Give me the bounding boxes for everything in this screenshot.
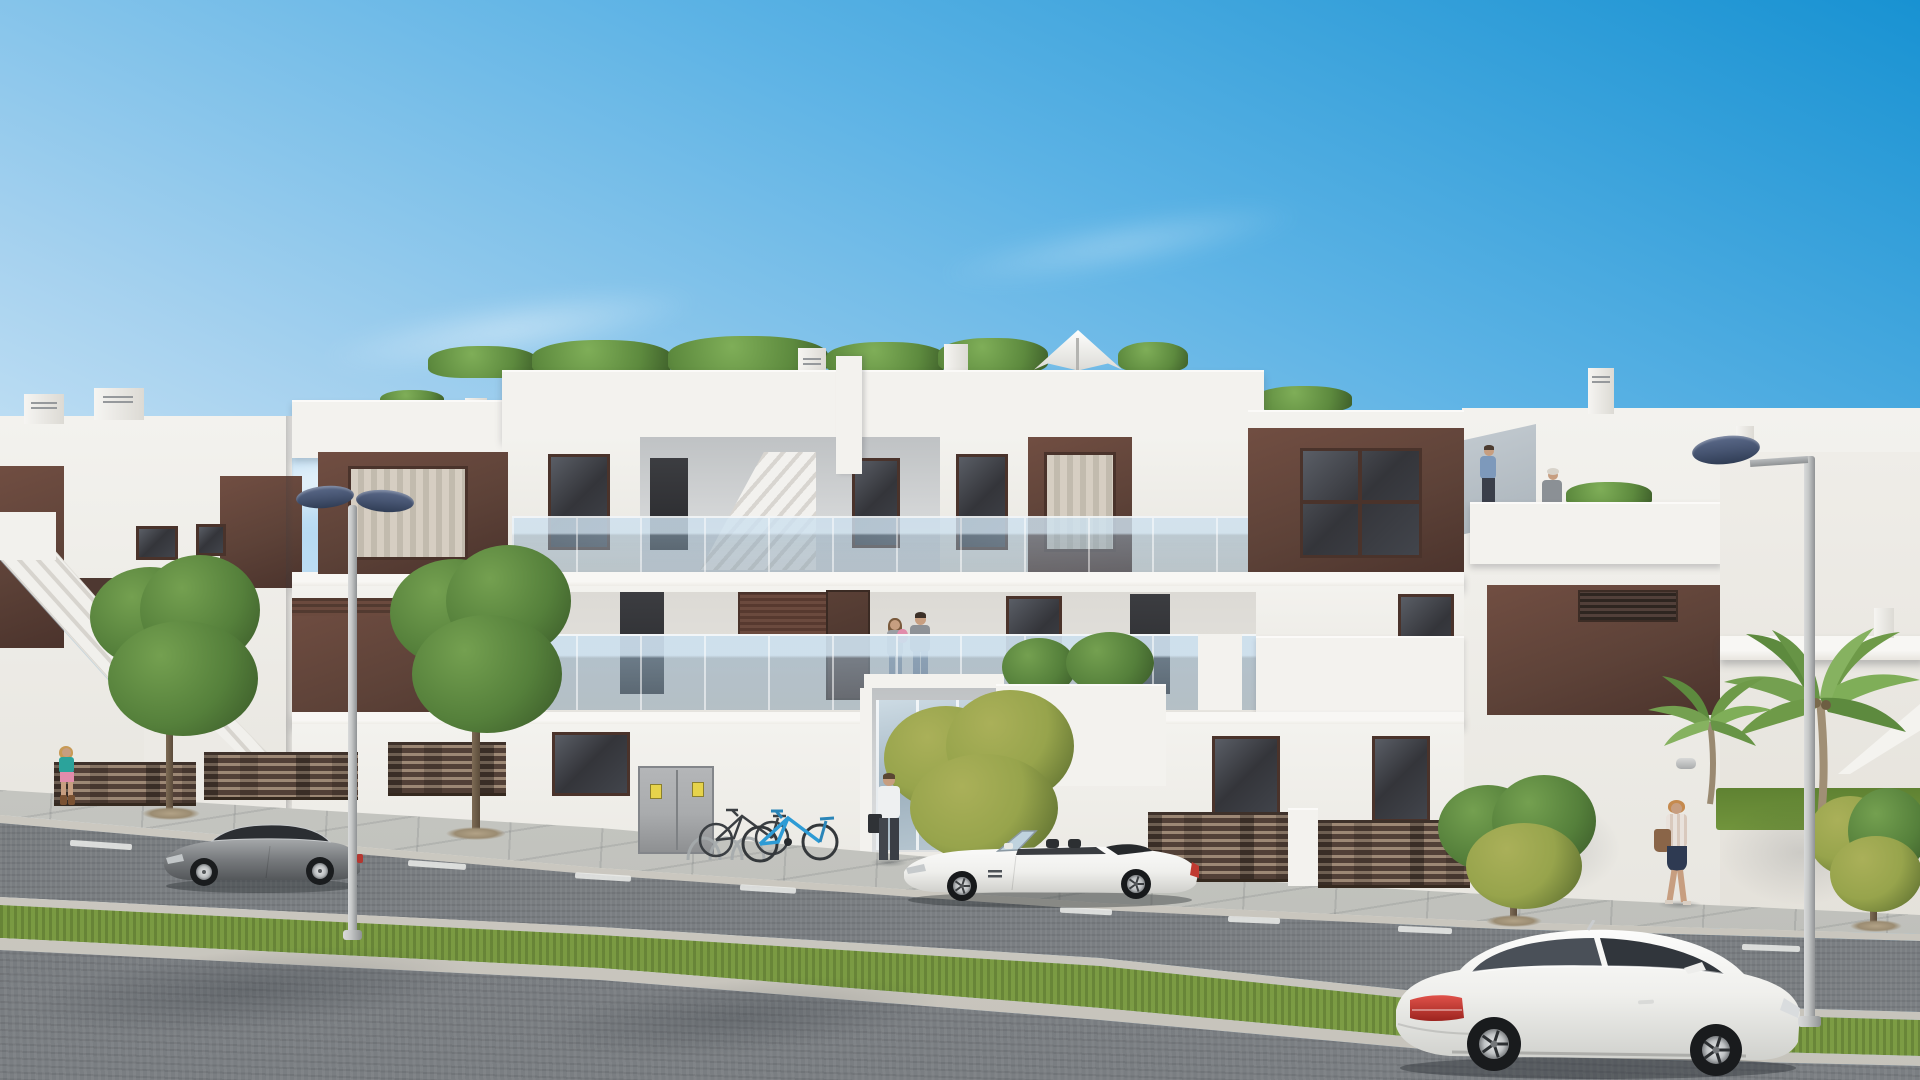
street-lamps: [0, 0, 1920, 1080]
lamp-arm: [1750, 456, 1808, 467]
lamp-pole-base: [1798, 1016, 1821, 1027]
lamp-pole-base: [343, 930, 362, 940]
lamp-head: [355, 488, 414, 514]
lamp-head: [295, 484, 355, 511]
lamp-pole: [1804, 456, 1815, 1024]
scene: [0, 0, 1920, 1080]
lamp-pole: [348, 505, 357, 938]
